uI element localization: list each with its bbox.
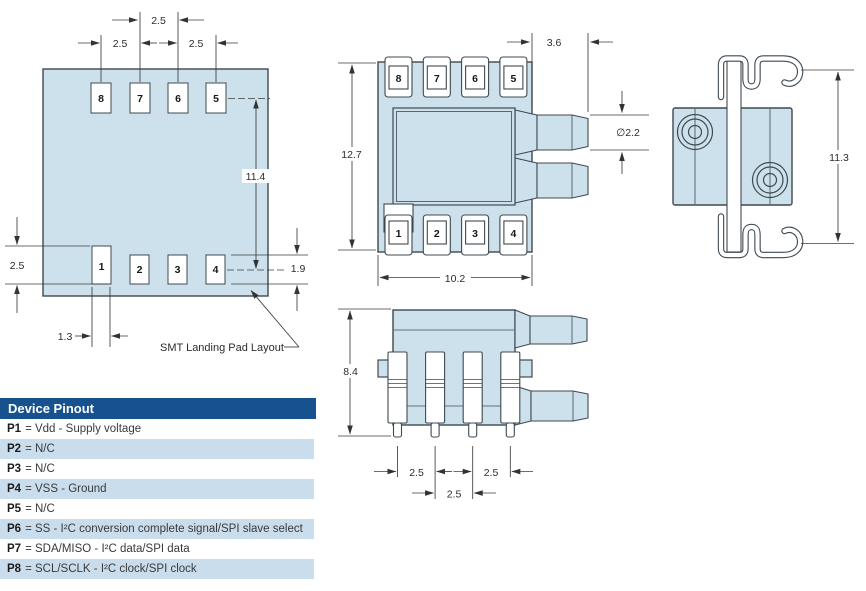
pin-id: P6: [7, 523, 21, 535]
landing-pad-caption: SMT Landing Pad Layout: [160, 291, 299, 355]
pad-4-label: 4: [213, 264, 219, 276]
top-view-width-dim: 10.2: [378, 255, 532, 286]
pad-7-label: 7: [137, 93, 143, 105]
pin-id: P2: [7, 443, 21, 455]
pinout-row-p1: P1= Vdd - Supply voltage: [0, 419, 314, 439]
pad-2-label: 2: [137, 264, 143, 276]
pad-8-label: 8: [98, 93, 104, 105]
pin-id: P7: [7, 543, 21, 555]
upper-port-tube-side: [530, 316, 587, 344]
pinout-row-p8: P8= SCL/SCLK - I²C clock/SPI clock: [0, 559, 314, 579]
pinout-title: Device Pinout: [0, 398, 316, 419]
dim-pitch-2-3: 2.5: [447, 489, 462, 501]
dim-pitch-1-2: 2.5: [409, 467, 424, 479]
dim-body-width: 10.2: [445, 273, 466, 285]
dim-pitch-7-6: 2.5: [151, 15, 166, 27]
dim-body-height: 12.7: [341, 149, 362, 161]
board-edge: [727, 58, 741, 252]
pinout-row-p7: P7= SDA/MISO - I²C data/SPI data: [0, 539, 314, 559]
pin-7-label: 7: [434, 73, 440, 85]
pin-desc: = N/C: [25, 443, 55, 455]
pinout-row-p4: P4= VSS - Ground: [0, 479, 314, 499]
pin-2-label: 2: [434, 228, 440, 240]
pin-id: P4: [7, 483, 21, 495]
lower-port-tube: [537, 163, 588, 198]
caption-leader-line: [251, 291, 299, 348]
upper-port-tube: [537, 115, 588, 150]
dim-pitch-3-4: 2.5: [484, 467, 499, 479]
dim-pad4-height: 1.9: [291, 263, 306, 275]
pin-6-label: 6: [472, 73, 478, 85]
port-diameter-dim: ∅2.2: [590, 91, 649, 174]
device-pinout-table: Device Pinout P1= Vdd - Supply voltage P…: [0, 398, 316, 579]
pin-5-label: 5: [510, 73, 516, 85]
sensor-cap: [393, 108, 515, 205]
pin-id: P8: [7, 563, 21, 575]
end-view-height-dim: 11.3: [801, 70, 854, 244]
pin-id: P3: [7, 463, 21, 475]
pin-desc: = SCL/SCLK - I²C clock/SPI clock: [25, 563, 197, 575]
dim-port-length: 3.6: [547, 37, 562, 49]
side-view-body: [393, 310, 515, 425]
pin-desc: = N/C: [25, 463, 55, 475]
pad-1-label: 1: [99, 261, 105, 273]
lower-port-neck: [515, 158, 537, 203]
pin-desc: = Vdd - Supply voltage: [25, 423, 141, 435]
pin-desc: = SDA/MISO - I²C data/SPI data: [25, 543, 190, 555]
lead-pitch-dims: 2.5 2.5 2.5: [374, 446, 533, 501]
pinout-row-p5: P5= N/C: [0, 499, 314, 519]
package-side-view: 8.4 2.5 2.5 2.5: [338, 309, 588, 501]
top-view-height-dim: 12.7: [337, 63, 376, 250]
pin-4-label: 4: [510, 228, 516, 240]
landing-pad-caption-text: SMT Landing Pad Layout: [160, 342, 284, 354]
upper-port-neck: [515, 110, 537, 155]
pad-5-label: 5: [213, 93, 219, 105]
pin-desc: = N/C: [25, 503, 55, 515]
datasheet-page: 8 7 6 5 1 2 3 4 2.5 2.5 2.5: [0, 0, 866, 591]
pin-id: P5: [7, 503, 21, 515]
dim-side-height: 8.4: [343, 366, 358, 378]
pad-6-label: 6: [175, 93, 181, 105]
pin-3-label: 3: [472, 228, 478, 240]
pin-desc: = VSS - Ground: [25, 483, 107, 495]
pinout-row-p3: P3= N/C: [0, 459, 314, 479]
pin-desc: = SS - I²C conversion complete signal/SP…: [25, 523, 303, 535]
dim-pitch-6-5: 2.5: [189, 38, 204, 50]
upper-port-neck-side: [515, 310, 530, 348]
package-top-view: 8 7 6 5 1 2 3 4: [337, 33, 649, 286]
dim-pitch-8-7: 2.5: [113, 38, 128, 50]
lower-port-tube-side: [531, 391, 588, 421]
pin-id: P1: [7, 423, 21, 435]
dim-port-diameter: ∅2.2: [616, 127, 640, 139]
pin-1-label: 1: [396, 228, 402, 240]
pinout-row-p6: P6= SS - I²C conversion complete signal/…: [0, 519, 314, 539]
pad-3-label: 3: [175, 264, 181, 276]
landing-pad-view: 8 7 6 5 1 2 3 4 2.5 2.5 2.5: [5, 12, 309, 354]
dim-pad1-height: 2.5: [10, 260, 25, 272]
pin-8-label: 8: [396, 73, 402, 85]
dim-pad1-width: 1.3: [58, 331, 73, 343]
dim-end-view-height: 11.3: [829, 152, 849, 164]
pinout-row-p2: P2= N/C: [0, 439, 314, 459]
landing-pad-body: [43, 69, 268, 296]
package-end-view: 11.3: [673, 58, 854, 255]
dim-pad-row-span: 11.4: [246, 171, 266, 183]
